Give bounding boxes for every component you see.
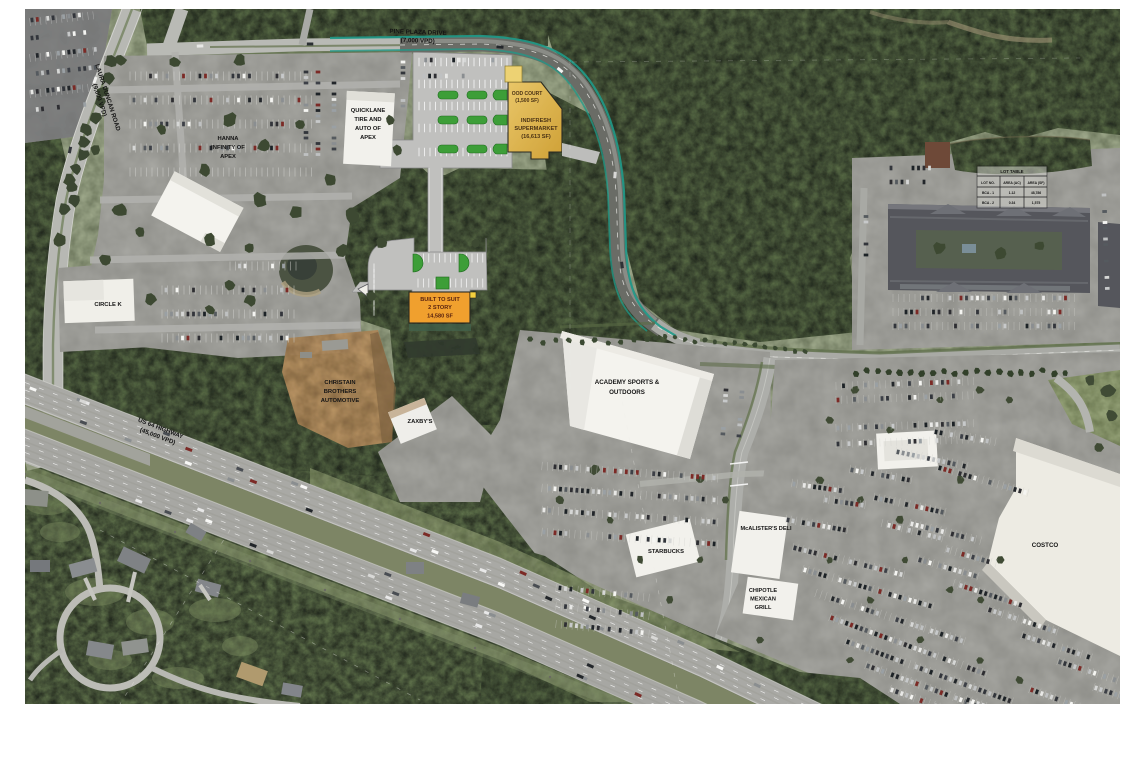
svg-text:48,786: 48,786 xyxy=(1031,191,1041,195)
svg-text:AREA (AC): AREA (AC) xyxy=(1003,181,1021,185)
svg-text:LOT NO.: LOT NO. xyxy=(981,181,995,185)
svg-text:CHRISTAINBROTHERSAUTOMOTIVE: CHRISTAINBROTHERSAUTOMOTIVE xyxy=(321,380,360,404)
svg-text:COSTCO: COSTCO xyxy=(1032,542,1059,549)
svg-text:1.12: 1.12 xyxy=(1009,191,1016,195)
svg-text:OOD COURT(1,500 SF): OOD COURT(1,500 SF) xyxy=(512,91,543,104)
svg-text:McALISTER'S DELI: McALISTER'S DELI xyxy=(740,526,792,532)
svg-text:AREA (SF): AREA (SF) xyxy=(1027,181,1044,185)
svg-text:1,575: 1,575 xyxy=(1032,201,1041,205)
svg-text:BCA - 1: BCA - 1 xyxy=(982,191,994,195)
svg-text:0.34: 0.34 xyxy=(1009,201,1016,205)
svg-text:LOT TABLE: LOT TABLE xyxy=(1000,169,1023,174)
svg-text:ZAXBY'S: ZAXBY'S xyxy=(408,419,433,425)
svg-text:BCA - 2: BCA - 2 xyxy=(982,201,994,205)
svg-text:STARBUCKS: STARBUCKS xyxy=(648,549,684,555)
svg-text:CIRCLE K: CIRCLE K xyxy=(94,302,122,308)
